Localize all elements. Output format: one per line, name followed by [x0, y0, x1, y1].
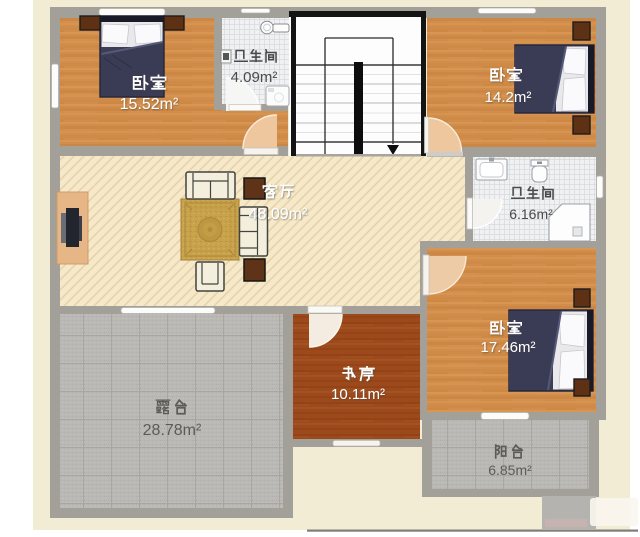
svg-text:6.85m²: 6.85m² — [488, 462, 532, 478]
svg-text:4.09m²: 4.09m² — [231, 69, 278, 86]
svg-text:48.09m²: 48.09m² — [249, 206, 308, 223]
svg-text:15.52m²: 15.52m² — [120, 96, 179, 113]
svg-text:6.16m²: 6.16m² — [509, 206, 553, 222]
svg-text:10.11m²: 10.11m² — [331, 386, 385, 403]
svg-text:17.46m²: 17.46m² — [480, 339, 535, 356]
svg-text:14.2m²: 14.2m² — [485, 89, 532, 106]
svg-text:28.78m²: 28.78m² — [143, 422, 202, 439]
